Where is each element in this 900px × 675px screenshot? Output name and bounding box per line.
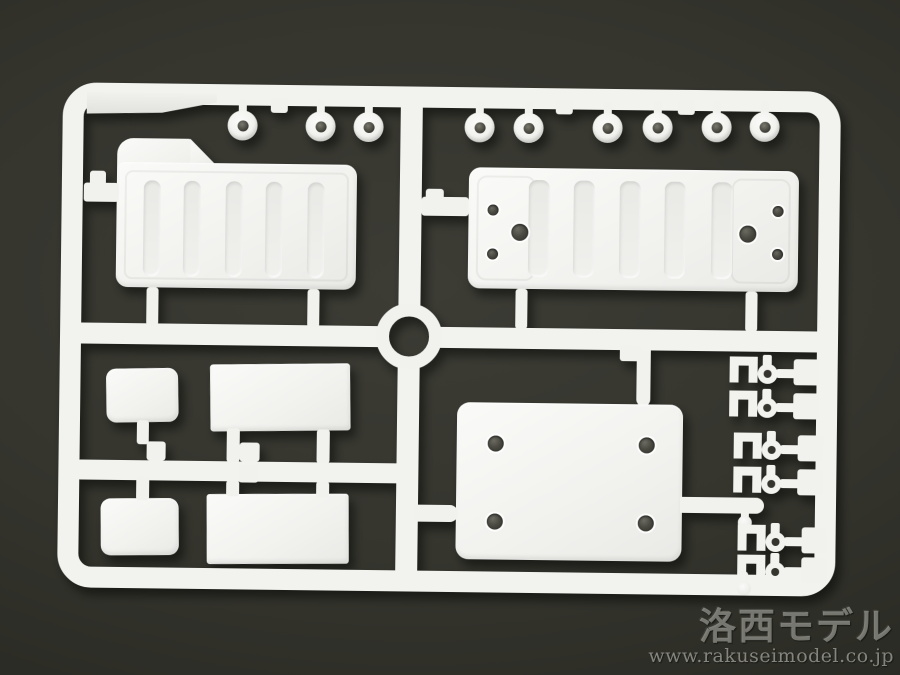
gate-tab (678, 100, 695, 115)
panel-hole-large (511, 224, 528, 241)
panel-left-gate-step (90, 171, 106, 187)
vertical-runner-top (398, 101, 423, 307)
panel-rib (711, 182, 733, 279)
sprue-runner (0, 0, 900, 675)
watermark-url: www.rakuseimodel.co.jp (648, 647, 894, 667)
gate-tab (147, 441, 166, 460)
fork-clevis-part (727, 387, 819, 424)
rectangular-plate (207, 494, 349, 564)
panel-rib (307, 182, 325, 278)
panel-rib (573, 181, 595, 278)
bushing-hole (711, 122, 722, 133)
bushing-hole (363, 121, 374, 132)
panel-rib (183, 181, 201, 277)
panel-bottom-gate (515, 289, 527, 329)
bushing-part (464, 112, 494, 142)
gate-stem (316, 429, 329, 463)
bushing-hole (602, 122, 613, 133)
fork-clevis-part (731, 429, 823, 466)
small-rounded-plate (101, 498, 179, 555)
panel-hole-small (772, 249, 783, 260)
bushing-hole (237, 120, 248, 131)
gate-tab (240, 442, 260, 461)
plate-left-gate (414, 505, 458, 523)
gate-stem (226, 480, 239, 496)
rectangular-plate (210, 363, 351, 431)
fork-clevis-part (727, 353, 819, 390)
bushing-part (305, 111, 335, 141)
plate-gate-stem (636, 350, 651, 406)
panel-bottom-gate (146, 287, 158, 325)
bushing-part (592, 113, 622, 143)
watermark-logo: 洛西モデル (648, 608, 894, 647)
gate-stem (226, 428, 239, 462)
panel-rib (143, 180, 161, 276)
small-rounded-plate (106, 368, 179, 423)
bushing-hole (759, 121, 770, 132)
panel-rib (664, 182, 686, 279)
bushing-part (227, 110, 257, 140)
panel-bottom-gate (745, 292, 757, 332)
gate-stem (136, 476, 149, 500)
panel-hole-small (488, 204, 499, 215)
gate-stem (316, 481, 329, 497)
gate-tab (271, 98, 288, 113)
horizontal-runner-left (78, 322, 381, 347)
watermark: 洛西モデル www.rakuseimodel.co.jp (648, 608, 894, 667)
panel-hole-small (773, 206, 784, 217)
panel-rib (265, 182, 283, 278)
gate-stem (137, 420, 149, 444)
gate-tab (556, 99, 573, 114)
panel-bottom-gate (307, 289, 319, 327)
ribbed-panel-left (116, 162, 358, 290)
photo-background: 洛西モデル www.rakuseimodel.co.jp (0, 0, 900, 675)
bushing-hole (315, 121, 326, 132)
fork-clevis-part (735, 552, 827, 589)
gate-tab (238, 464, 258, 482)
plate-hole (488, 435, 504, 451)
plate-hole (487, 513, 503, 529)
ribbed-panel-right (468, 167, 799, 292)
fork-clevis-part (731, 463, 823, 500)
panel-hole-small (487, 248, 498, 259)
panel-left-gate-step (426, 189, 444, 203)
panel-hole-large (739, 226, 756, 243)
plate-hole (638, 515, 654, 531)
bushing-hole (474, 122, 485, 133)
plate-hole (639, 437, 655, 453)
panel-rib (528, 180, 550, 277)
base-plate (455, 402, 683, 562)
panel-rib (225, 181, 243, 277)
panel-rib (619, 181, 641, 278)
bushing-hole (523, 122, 534, 133)
bushing-part (701, 112, 731, 142)
bushing-hole (652, 122, 663, 133)
